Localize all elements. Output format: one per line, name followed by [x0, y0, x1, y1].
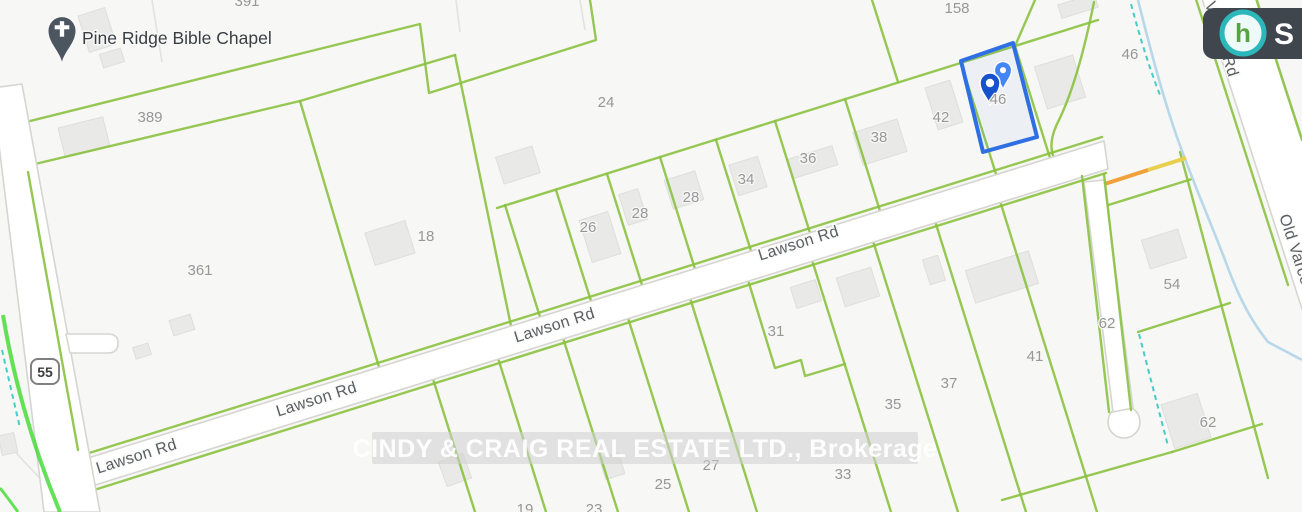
lot-number-label: 46: [1122, 46, 1139, 63]
lot-number-label: 38: [871, 129, 888, 146]
lot-number-label: 28: [683, 189, 700, 206]
lot-number-label: 36: [800, 150, 817, 167]
lot-number-label: 28: [632, 205, 649, 222]
lot-number-label: 37: [941, 375, 958, 392]
lot-number-label: 19: [517, 501, 534, 512]
lot-number-label: 23: [586, 501, 603, 512]
lot-number-label: 158: [944, 0, 969, 17]
lot-number-label: 42: [933, 109, 950, 126]
brand-badge-letter: S: [1274, 18, 1294, 51]
lot-number-label: 31: [768, 323, 785, 340]
driveway-stub: [66, 334, 118, 353]
lot-number-label: 33: [835, 466, 852, 483]
lot-number-label: 391: [234, 0, 259, 10]
parcel-map[interactable]: Pine Ridge Bible Chapel 55 3911583893611…: [0, 0, 1302, 512]
lot-number-label: 26: [580, 219, 597, 236]
lot-number-label: 62: [1099, 315, 1116, 332]
lot-number-label: 25: [655, 476, 672, 493]
brand-badge[interactable]: h S: [1203, 8, 1302, 59]
lot-number-label: 361: [187, 262, 212, 279]
lot-number-label: 34: [738, 171, 755, 188]
lot-number-label: 54: [1164, 276, 1181, 293]
lot-number-label: 24: [598, 94, 615, 111]
route-shield-number: 55: [37, 364, 53, 380]
watermark-text: CINDY & CRAIG REAL ESTATE LTD., Brokerag…: [353, 435, 938, 463]
lot-number-label: 35: [885, 396, 902, 413]
route-shield: 55: [31, 359, 59, 384]
map-canvas[interactable]: Pine Ridge Bible Chapel 55 3911583893611…: [0, 0, 1302, 512]
lot-number-label: 62: [1200, 414, 1217, 431]
watermark: CINDY & CRAIG REAL ESTATE LTD., Brokerag…: [353, 432, 938, 464]
lot-number-label: 41: [1027, 348, 1044, 365]
lot-number-label: 389: [137, 109, 162, 126]
lot-number-label: 18: [418, 228, 435, 245]
poi-label[interactable]: Pine Ridge Bible Chapel: [82, 28, 272, 48]
brand-logo-glyph: h: [1235, 18, 1251, 48]
lot-number-label: 46: [990, 91, 1007, 108]
